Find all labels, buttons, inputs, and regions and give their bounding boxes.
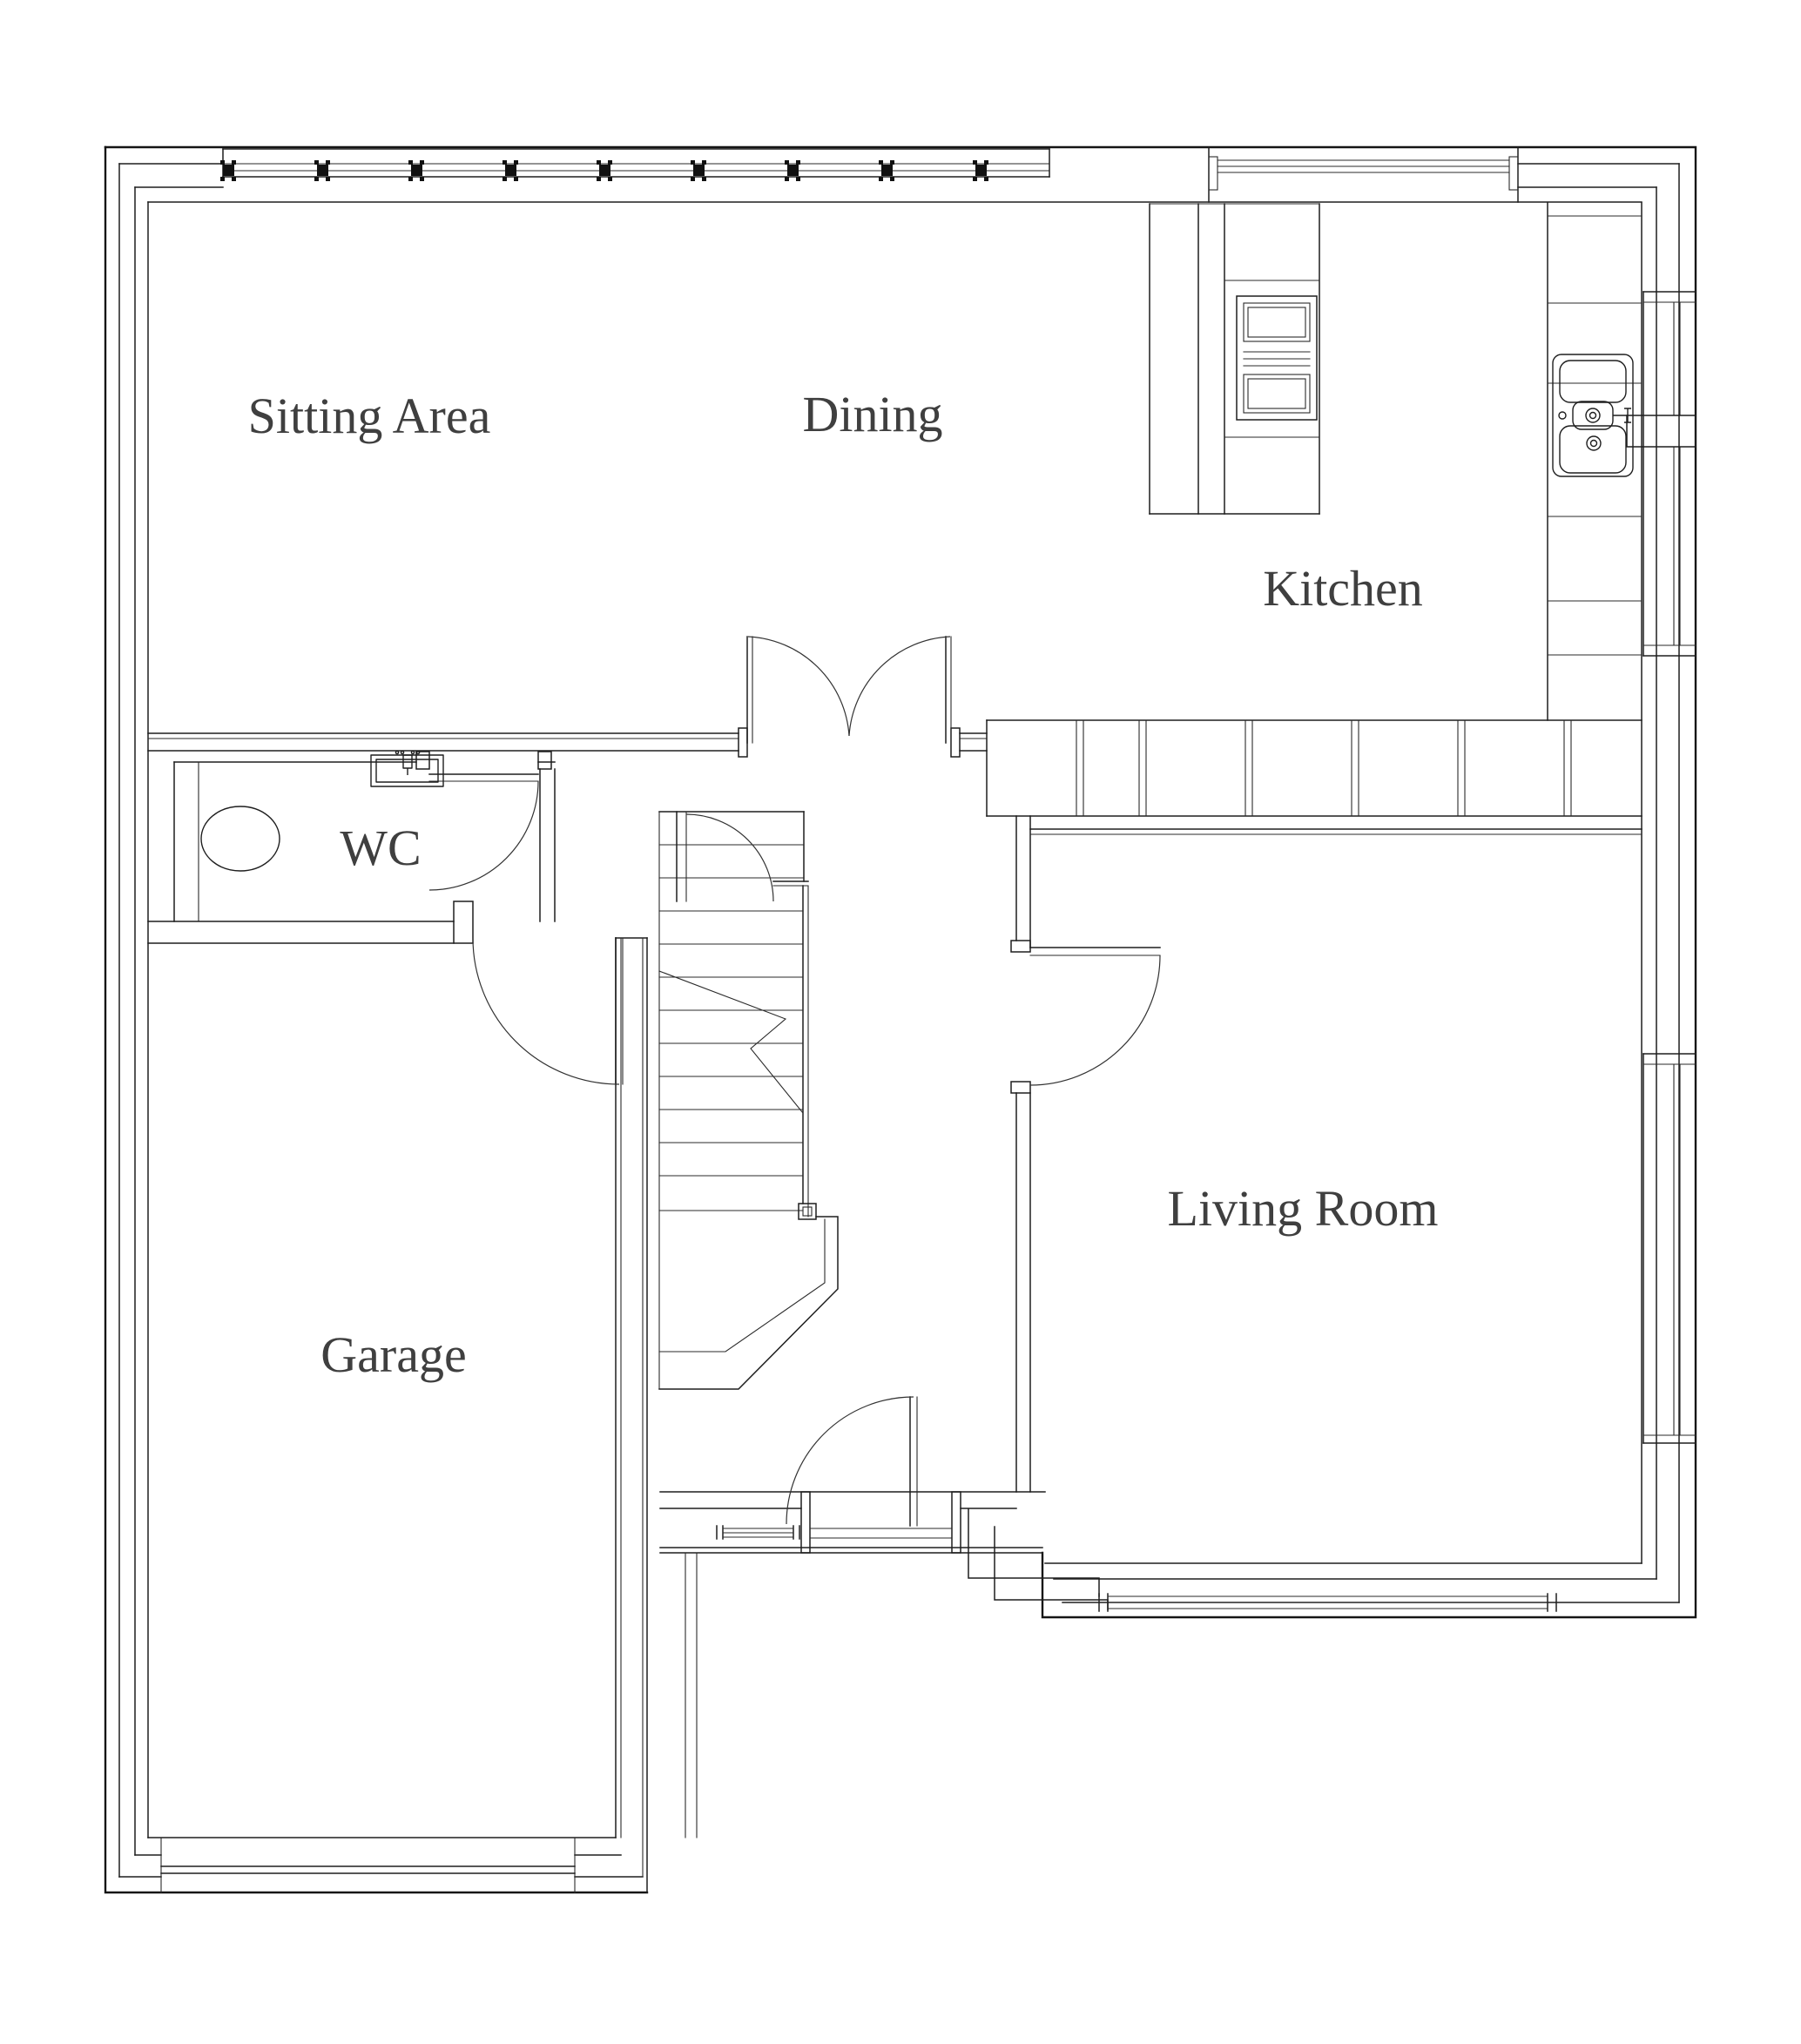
wc-door [429,774,538,890]
porch-window [717,1526,799,1539]
room-label-garage: Garage [320,1326,466,1383]
garage-door-symbol [161,1866,575,1873]
oven-symbol [1237,296,1317,420]
room-label-wc: WC [340,820,421,876]
double-door-dining [747,637,951,743]
front-door-symbol [786,1397,961,1553]
interior-walls [148,728,1642,1892]
stairs-symbol [659,812,838,1389]
kitchen-counter-bottom [987,720,1642,816]
kitchen-sink-symbol [1553,354,1633,476]
room-labels: Sitting Area Dining Kitchen WC Garage Li… [248,386,1439,1383]
kitchen-top-window [1209,147,1518,202]
living-room-bottom-window [1099,1594,1556,1611]
room-label-dining: Dining [802,386,942,442]
room-label-sitting-area: Sitting Area [248,388,491,444]
kitchen-counter-right [1548,203,1642,720]
room-label-kitchen: Kitchen [1263,560,1423,617]
floor-plan-canvas: Sitting Area Dining Kitchen WC Garage Li… [0,0,1801,2044]
understair-closet [659,1217,838,1389]
stair-break-line [659,971,803,1113]
room-label-living-room: Living Room [1168,1180,1439,1237]
stair-cupboard-door [677,812,773,901]
kitchen-island [1150,204,1319,514]
doors [429,637,1160,1553]
toilet-symbol [201,806,280,871]
stair-treads [659,845,803,1211]
floor-plan-page: Sitting Area Dining Kitchen WC Garage Li… [0,0,1801,2044]
newel-post [799,1204,816,1219]
living-room-door [1030,948,1160,1085]
kitchen-fixtures [987,203,1642,816]
living-room-side-window [1643,1054,1696,1443]
garage-internal-door [473,938,623,1084]
top-window-strip [220,149,1049,181]
